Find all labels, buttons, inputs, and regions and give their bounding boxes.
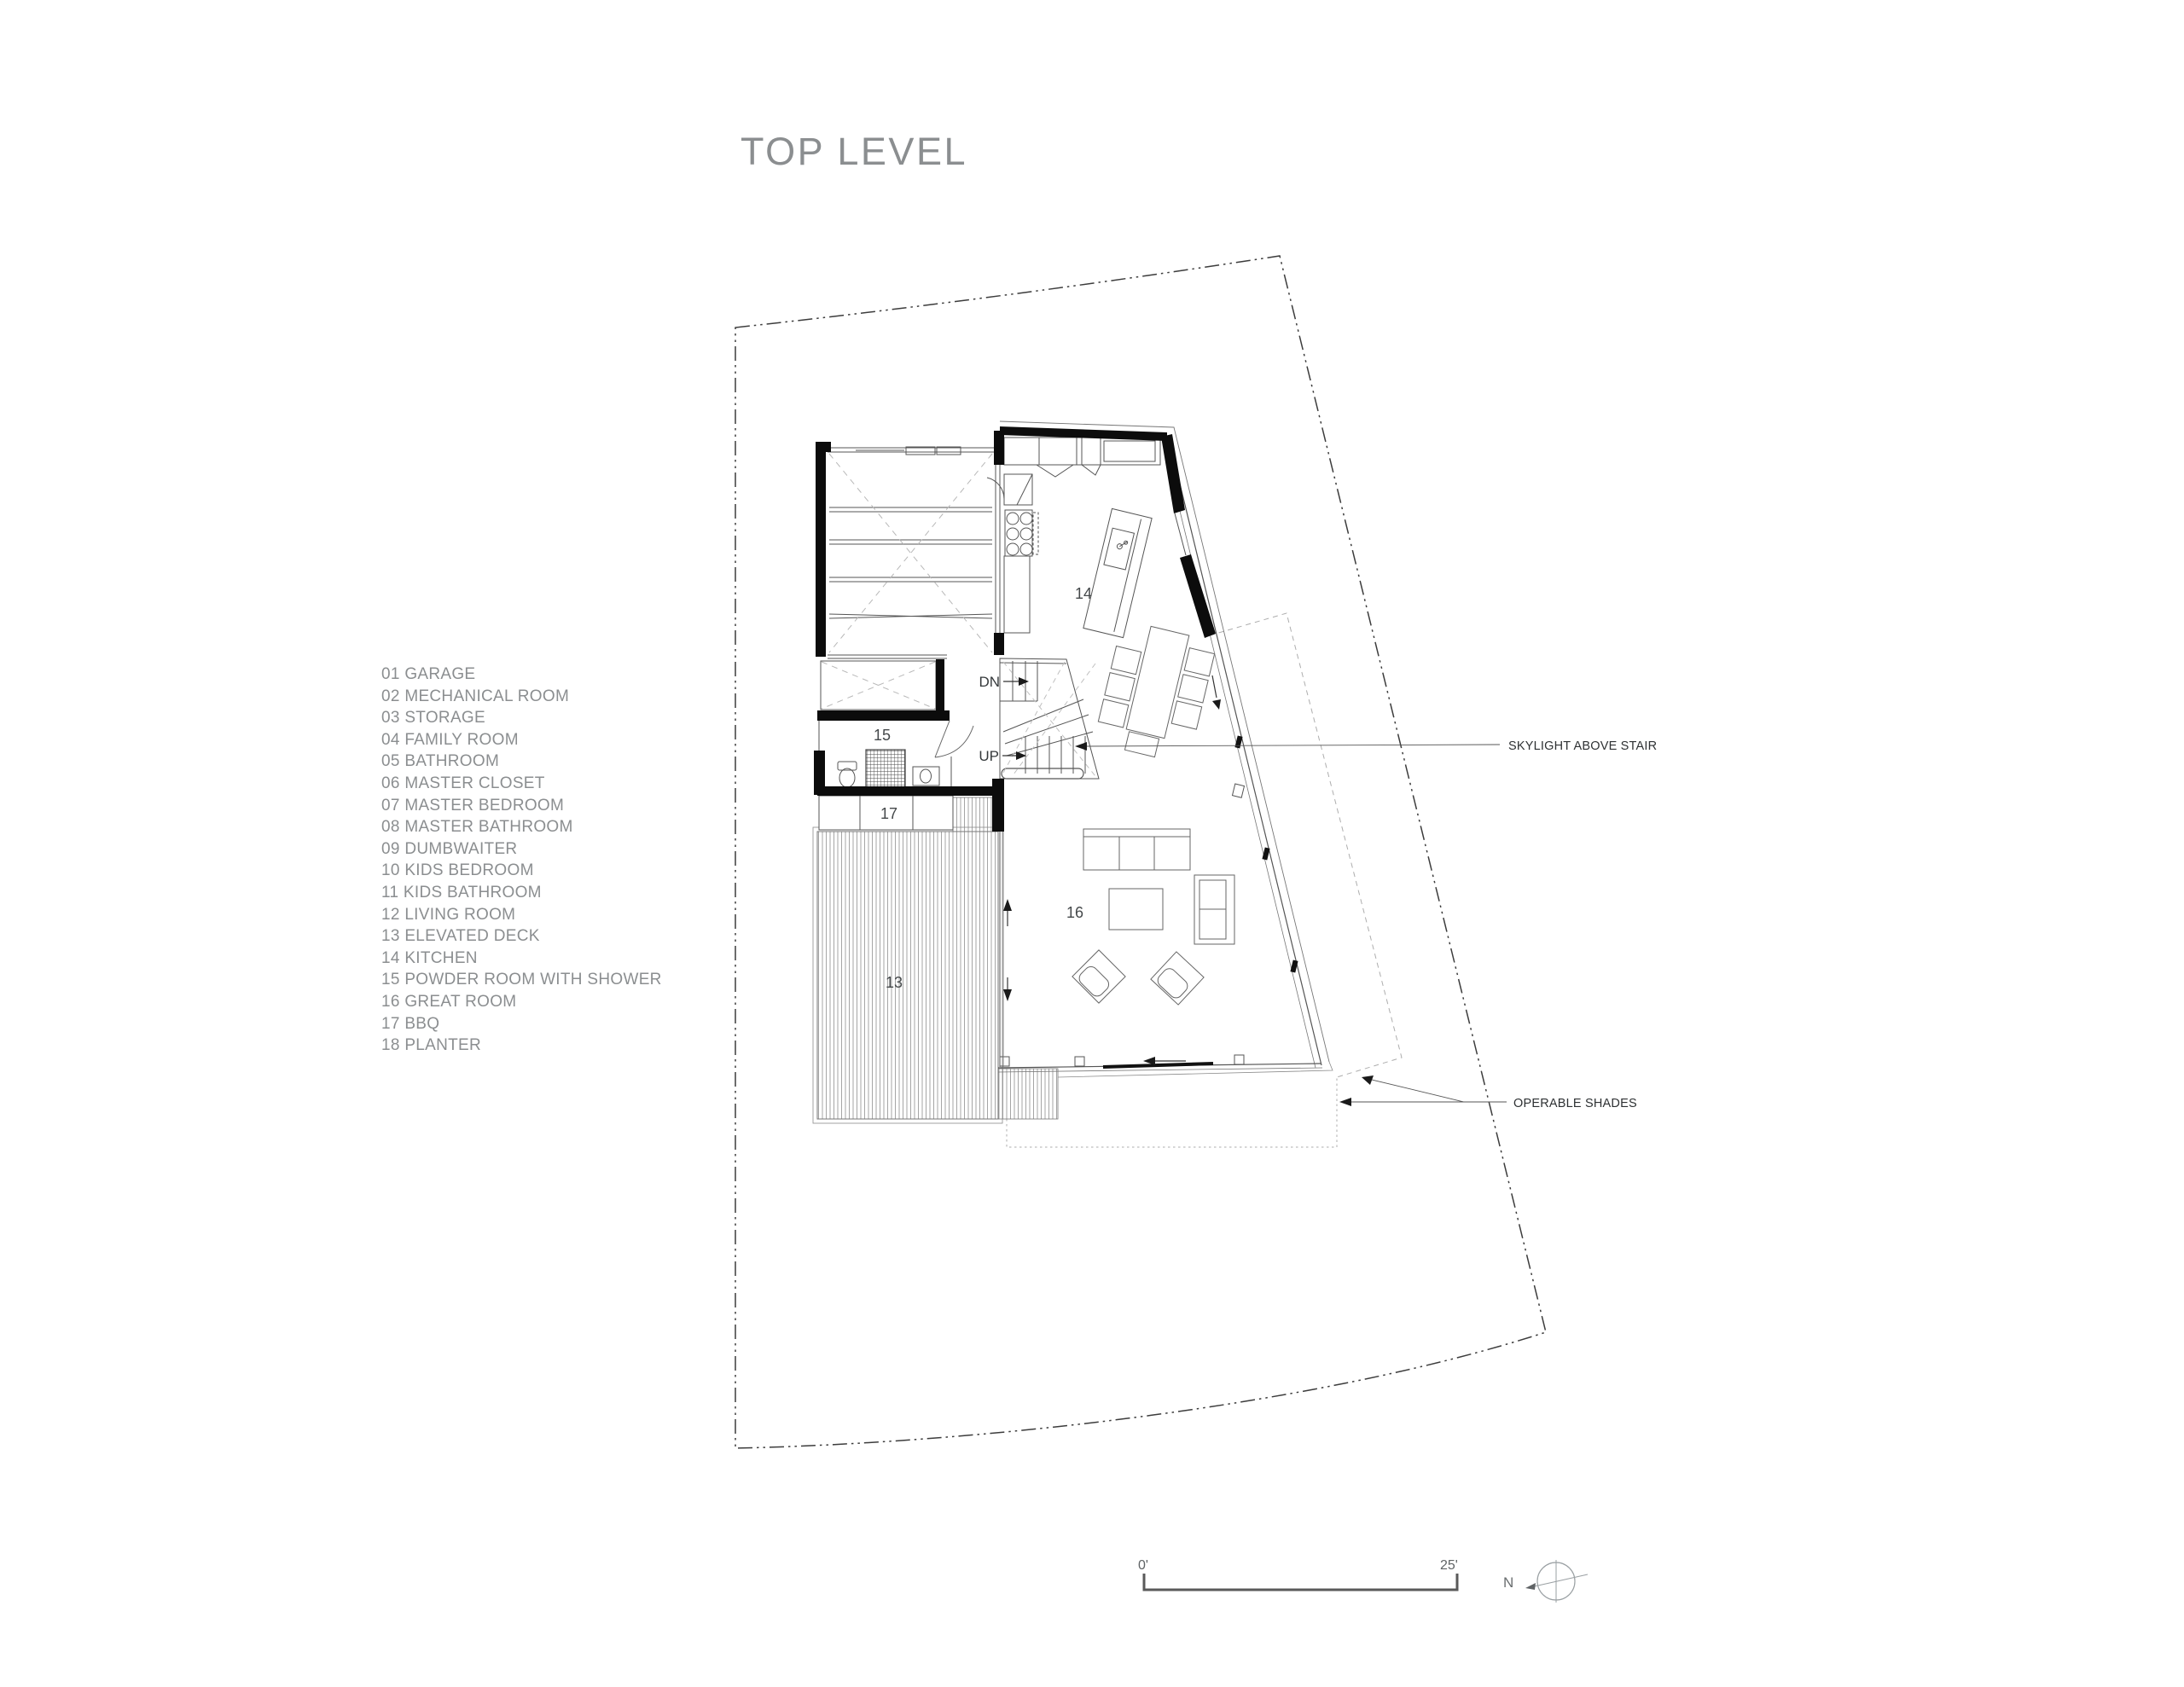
scale-start-label: 0' xyxy=(1138,1558,1148,1573)
skylight-callout: SKYLIGHT ABOVE STAIR xyxy=(1075,739,1657,753)
powder-room xyxy=(819,721,973,789)
skylight-room xyxy=(828,447,1000,658)
sink xyxy=(913,767,939,786)
dumbwaiter-shaft xyxy=(821,661,936,710)
floor-plan-sheet: TOP LEVEL 01 GARAGE 02 MECHANICAL ROOM 0… xyxy=(0,0,2184,1687)
kitchen-island xyxy=(1083,508,1152,637)
sofa xyxy=(1083,829,1190,870)
lounge-chair xyxy=(1151,952,1204,1005)
great-room xyxy=(998,829,1333,1077)
stair-up-label: UP xyxy=(979,748,999,764)
lounge-chair xyxy=(1072,950,1125,1003)
scale-bar: 0' 25' xyxy=(1138,1558,1458,1590)
window-wall xyxy=(1163,438,1321,1068)
staircase: DN UP xyxy=(979,658,1099,779)
cooktop xyxy=(1005,510,1038,556)
north-label: N xyxy=(1503,1574,1513,1591)
floor-plan-drawing: DN UP xyxy=(0,0,2184,1687)
shower xyxy=(866,750,905,789)
room-label-kitchen: 14 xyxy=(1075,585,1092,602)
coffee-table xyxy=(1109,889,1163,930)
toilet xyxy=(838,762,857,787)
skylight-callout-label: SKYLIGHT ABOVE STAIR xyxy=(1508,739,1657,753)
dining-set xyxy=(1093,619,1217,765)
elevated-deck xyxy=(813,797,1058,1123)
shades-callout: OPERABLE SHADES xyxy=(1339,1075,1637,1110)
north-arrow: N xyxy=(1503,1560,1588,1603)
room-label-great-room: 16 xyxy=(1066,904,1083,921)
room-label-powder: 15 xyxy=(874,727,891,744)
room-label-deck: 13 xyxy=(886,974,903,991)
shades-callout-label: OPERABLE SHADES xyxy=(1513,1097,1637,1110)
scale-end-label: 25' xyxy=(1440,1558,1458,1573)
room-label-bbq: 17 xyxy=(880,805,897,822)
stair-down-label: DN xyxy=(979,674,1000,690)
armchair xyxy=(1194,875,1234,944)
